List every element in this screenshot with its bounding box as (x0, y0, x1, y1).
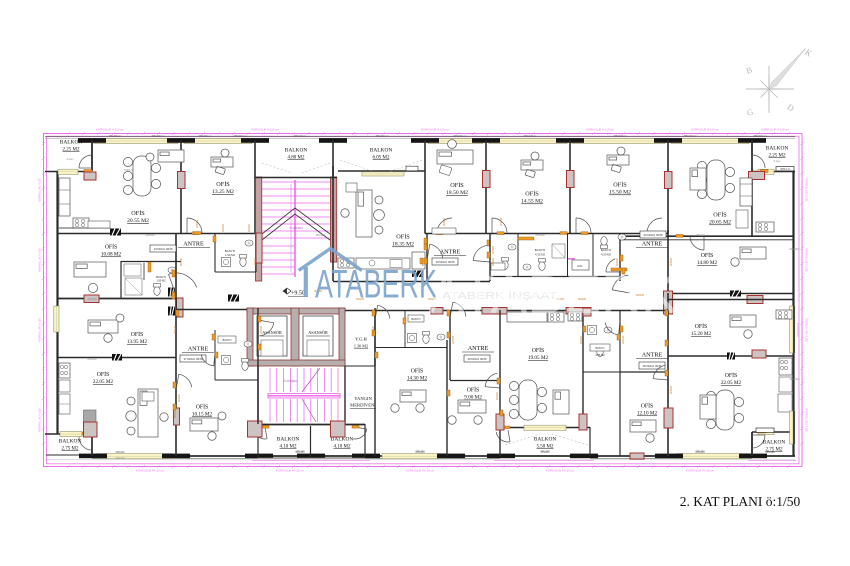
svg-text:ANTRE: ANTRE (440, 249, 461, 256)
svg-text:90/220: 90/220 (442, 217, 446, 225)
svg-text:ANTRE: ANTRE (642, 352, 663, 359)
svg-text:KORKULUK H:110 cm: KORKULUK H:110 cm (691, 128, 720, 132)
svg-text:305x220 cm: 305x220 cm (151, 135, 164, 138)
svg-text:MERDİVENİ: MERDİVENİ (350, 403, 376, 408)
svg-text:205x120: 205x120 (115, 457, 125, 460)
svg-text:BALKON: BALKON (59, 439, 82, 445)
svg-text:90/220: 90/220 (253, 258, 257, 266)
svg-text:305x220 cm: 305x220 cm (753, 135, 766, 138)
svg-text:4.75 M2: 4.75 M2 (595, 353, 605, 357)
svg-text:305x220 cm: 305x220 cm (523, 135, 536, 138)
svg-text:OFİS: OFİS (97, 371, 110, 378)
svg-text:KORKULUK H:110 cm: KORKULUK H:110 cm (251, 128, 280, 132)
svg-text:90/220: 90/220 (173, 409, 177, 417)
svg-text:KORKULUK H:110 cm: KORKULUK H:110 cm (96, 128, 125, 132)
svg-text:15.20 M2: 15.20 M2 (691, 331, 712, 337)
svg-text:BANYO: BANYO (222, 338, 231, 342)
svg-text:OFİS: OFİS (396, 234, 410, 241)
svg-text:KORKULUK H:110: KORKULUK H:110 (37, 248, 41, 272)
svg-text:OFİS: OFİS (131, 331, 144, 338)
svg-text:4.35 M2: 4.35 M2 (535, 253, 546, 257)
svg-text:305x220 cm: 305x220 cm (375, 135, 388, 138)
svg-text:KORKULUK H:110: KORKULUK H:110 (804, 408, 808, 432)
svg-text:BANYO: BANYO (595, 346, 604, 350)
svg-text:305x220: 305x220 (765, 451, 775, 454)
svg-text:BANYO: BANYO (535, 248, 546, 252)
svg-text:17 NOLU OFİS: 17 NOLU OFİS (184, 356, 203, 361)
svg-text:KORKULUK H:110 cm: KORKULUK H:110 cm (586, 128, 615, 132)
svg-text:ATABERK: ATABERK (428, 265, 678, 325)
svg-text:9.00 M2: 9.00 M2 (464, 395, 482, 401)
svg-text:+9.50: +9.50 (291, 291, 305, 297)
svg-text:90/220: 90/220 (451, 336, 455, 344)
svg-text:OFİS: OFİS (641, 403, 654, 410)
svg-text:205x120: 205x120 (789, 248, 799, 251)
svg-text:305x220: 305x220 (695, 451, 705, 454)
svg-text:BALKON: BALKON (277, 437, 300, 443)
svg-text:90/220: 90/220 (621, 336, 625, 344)
svg-text:Y.G.H: Y.G.H (355, 337, 367, 342)
svg-text:1.90 M2: 1.90 M2 (156, 279, 166, 283)
svg-text:4.50 M2: 4.50 M2 (601, 253, 612, 257)
svg-text:KORKULUK H:110 cm: KORKULUK H:110 cm (761, 128, 790, 132)
svg-text:90/220: 90/220 (177, 393, 181, 401)
svg-text:90/220: 90/220 (259, 326, 263, 334)
svg-text:4.10 M2: 4.10 M2 (334, 445, 351, 450)
svg-text:4.10 M2: 4.10 M2 (280, 445, 297, 450)
svg-text:305x220 cm: 305x220 cm (233, 135, 246, 138)
svg-text:305x220 cm: 305x220 cm (683, 135, 696, 138)
svg-text:KORKULUK H:110: KORKULUK H:110 (804, 248, 808, 272)
svg-text:305x220 cm: 305x220 cm (198, 135, 211, 138)
svg-text:305x220 cm: 305x220 cm (293, 135, 306, 138)
svg-text:OFİS: OFİS (725, 372, 738, 379)
svg-text:20.65 M2: 20.65 M2 (709, 220, 731, 226)
svg-text:KORKULUK H:110: KORKULUK H:110 (37, 408, 41, 432)
svg-text:KORKULUK PV:10 cm: KORKULUK PV:10 cm (546, 469, 575, 473)
svg-text:10.15 M2: 10.15 M2 (192, 412, 213, 418)
svg-text:KORKULUK H:110: KORKULUK H:110 (37, 178, 41, 202)
svg-text:13.95 M2: 13.95 M2 (127, 339, 148, 345)
svg-text:ANTRE: ANTRE (468, 345, 489, 352)
svg-text:KORKULUK PV:10 cm: KORKULUK PV:10 cm (136, 469, 165, 473)
svg-text:KORKULUK H:110: KORKULUK H:110 (804, 178, 808, 202)
svg-text:OFİS: OFİS (701, 252, 714, 259)
svg-text:OFİS: OFİS (525, 191, 539, 198)
svg-text:22.05 M2: 22.05 M2 (93, 379, 114, 385)
svg-text:305x220: 305x220 (415, 451, 425, 454)
svg-text:ATABERK: ATABERK (315, 263, 437, 307)
svg-text:305x220 cm: 305x220 cm (453, 135, 466, 138)
svg-text:16 NOLU OFİS: 16 NOLU OFİS (468, 356, 487, 361)
svg-text:5.50 M2: 5.50 M2 (537, 445, 554, 450)
svg-text:2.25 M2: 2.25 M2 (769, 154, 786, 159)
svg-text:OFİS: OFİS (216, 181, 230, 188)
svg-text:BANYO: BANYO (411, 317, 420, 321)
svg-text:305x220 cm: 305x220 cm (613, 135, 626, 138)
svg-text:205x120: 205x120 (87, 358, 97, 361)
svg-text:OFİS: OFİS (613, 182, 627, 189)
svg-text:S:kapı: S:kapı (66, 157, 74, 161)
svg-text:OFİS: OFİS (196, 404, 209, 411)
svg-text:BALKON: BALKON (60, 140, 83, 146)
svg-text:KORKULUK H:110: KORKULUK H:110 (804, 318, 808, 342)
svg-text:OFİS: OFİS (695, 323, 708, 330)
svg-text:S:kapı: S:kapı (773, 159, 781, 163)
svg-text:90/220: 90/220 (491, 246, 495, 254)
svg-text:90/220: 90/220 (173, 325, 177, 333)
svg-text:14 NOLU OFİS: 14 NOLU OFİS (154, 246, 173, 251)
svg-text:305x220: 305x220 (295, 451, 305, 454)
svg-text:OFİS: OFİS (131, 210, 145, 217)
svg-text:90/220: 90/220 (669, 386, 673, 394)
svg-text:OFİS: OFİS (105, 244, 118, 251)
svg-text:90/220: 90/220 (499, 218, 503, 226)
svg-text:205x120: 205x120 (315, 234, 325, 237)
svg-text:12.10 M2: 12.10 M2 (637, 411, 658, 417)
svg-text:ANTRE: ANTRE (183, 241, 204, 248)
svg-text:OFİS: OFİS (411, 368, 424, 375)
svg-text:BALKON: BALKON (370, 148, 393, 154)
svg-text:10.08 M2: 10.08 M2 (101, 252, 122, 258)
svg-text:2.25 M2: 2.25 M2 (63, 148, 80, 153)
svg-text:18.35 M2: 18.35 M2 (392, 242, 414, 248)
svg-text:6.05 M2: 6.05 M2 (373, 156, 390, 161)
svg-text:14.55 M2: 14.55 M2 (521, 199, 543, 205)
svg-text:2. KAT PLANI ö:1/50: 2. KAT PLANI ö:1/50 (680, 494, 801, 509)
svg-text:14.80 M2: 14.80 M2 (697, 260, 718, 266)
svg-text:KORKULUK: KORKULUK (796, 323, 800, 338)
svg-text:KORKULUK H:110 cm: KORKULUK H:110 cm (421, 128, 450, 132)
svg-text:ANTRE: ANTRE (642, 241, 663, 248)
svg-text:BALKON: BALKON (766, 146, 789, 152)
svg-text:BALKON: BALKON (534, 437, 557, 443)
svg-text:Ö:178/184: Ö:178/184 (289, 226, 303, 230)
svg-text:KORKULUK PV:10 cm: KORKULUK PV:10 cm (686, 469, 715, 473)
svg-text:STR 1.0: STR 1.0 (780, 167, 790, 171)
svg-text:305x220: 305x220 (540, 451, 550, 454)
svg-text:OFİS: OFİS (450, 182, 464, 189)
svg-text:205x120: 205x120 (535, 234, 545, 237)
svg-text:20.55 M2: 20.55 M2 (127, 218, 149, 224)
svg-text:90/220: 90/220 (371, 325, 375, 333)
svg-text:305x220 cm: 305x220 cm (108, 135, 121, 138)
svg-text:KORKULUK PV:10 cm: KORKULUK PV:10 cm (276, 469, 305, 473)
svg-text:OFİS: OFİS (713, 212, 727, 219)
svg-text:90/220: 90/220 (195, 220, 199, 228)
svg-text:90/220: 90/220 (247, 223, 251, 231)
svg-text:205x120: 205x120 (789, 378, 799, 381)
svg-text:BALKON: BALKON (285, 148, 308, 154)
svg-text:KORKULUK PV:10 cm: KORKULUK PV:10 cm (406, 469, 435, 473)
svg-text:ANTRE: ANTRE (188, 346, 209, 353)
svg-text:BANYO: BANYO (156, 275, 167, 279)
svg-text:14.30 M2: 14.30 M2 (407, 376, 428, 382)
svg-text:305x220: 305x220 (115, 451, 125, 454)
svg-text:13 NOLU OFİS: 13 NOLU OFİS (436, 259, 455, 264)
svg-text:4.80 M2: 4.80 M2 (288, 156, 305, 161)
svg-text:205x120: 205x120 (87, 298, 97, 301)
svg-text:12 NOLU OFİS: 12 NOLU OFİS (644, 232, 663, 237)
svg-text:ASANSÖR: ASANSÖR (308, 330, 328, 335)
svg-text:205x120: 205x120 (695, 234, 705, 237)
svg-text:15.50 M2: 15.50 M2 (609, 190, 631, 196)
svg-text:2.75 M2: 2.75 M2 (62, 447, 79, 452)
svg-text:19.05 M2: 19.05 M2 (528, 355, 549, 361)
svg-text:205x120: 205x120 (145, 234, 155, 237)
svg-text:13.25 M2: 13.25 M2 (212, 189, 234, 195)
svg-text:15 NOLU OFİS: 15 NOLU OFİS (643, 363, 662, 368)
svg-text:90/220: 90/220 (179, 257, 183, 265)
svg-text:Ö:178/184: Ö:178/184 (283, 379, 297, 383)
svg-text:KORKULUK H:110: KORKULUK H:110 (37, 318, 41, 342)
svg-text:90/220: 90/220 (221, 224, 225, 232)
svg-text:1.30 M2: 1.30 M2 (354, 344, 368, 349)
svg-text:18.50 M2: 18.50 M2 (446, 190, 468, 196)
svg-text:BALKON: BALKON (763, 440, 786, 446)
svg-text:90/220: 90/220 (495, 391, 499, 399)
svg-text:90/220: 90/220 (579, 335, 583, 343)
svg-text:OFİS: OFİS (532, 347, 545, 354)
svg-text:OFİS: OFİS (467, 387, 480, 394)
svg-text:YANGIN: YANGIN (354, 396, 372, 401)
svg-text:22.05 M2: 22.05 M2 (721, 380, 742, 386)
svg-text:1.90 M2: 1.90 M2 (225, 253, 236, 257)
